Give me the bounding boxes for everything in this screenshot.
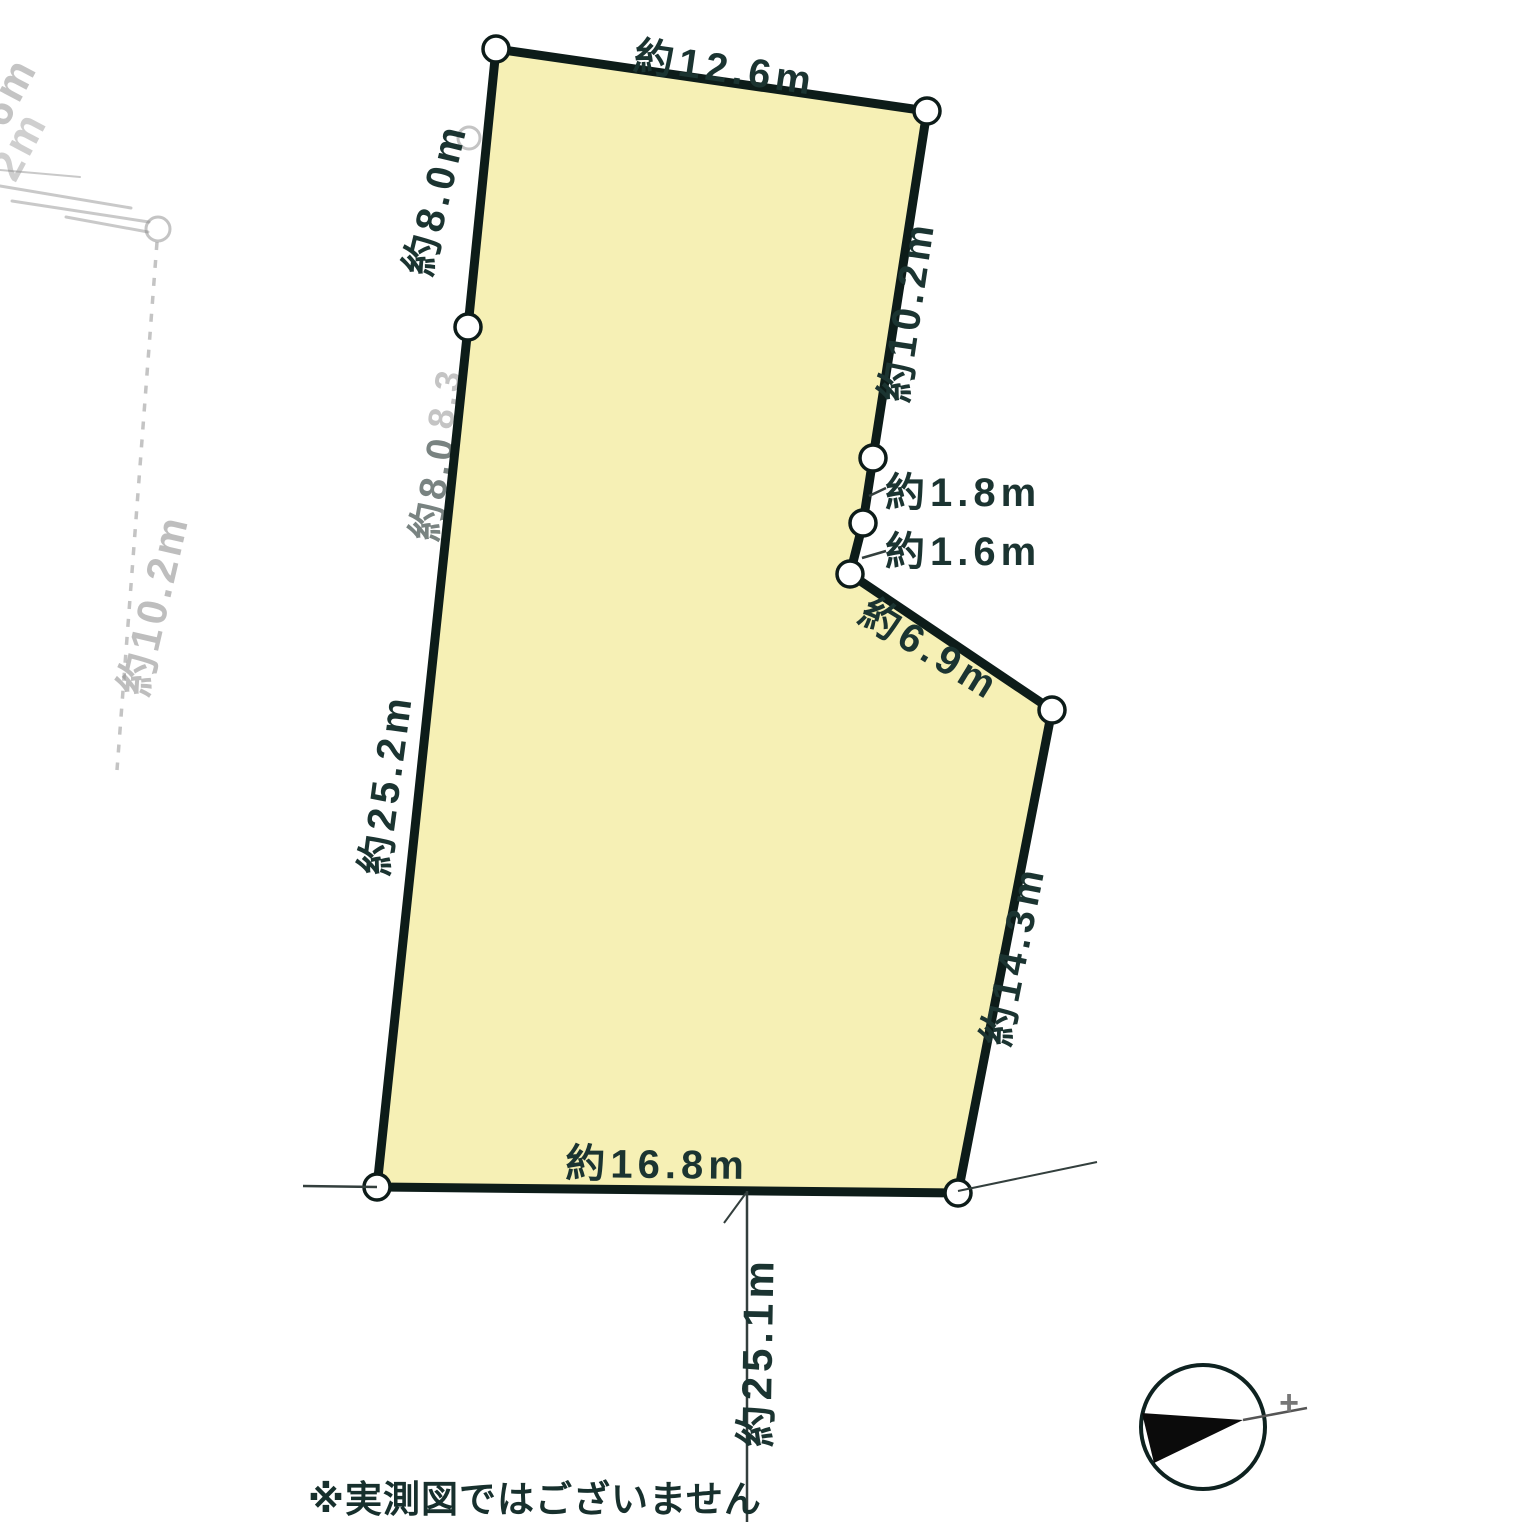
road-line-left (303, 1186, 377, 1187)
dim-step-2: 約1.6m (885, 530, 1041, 574)
measure-tick (724, 1193, 746, 1223)
ghost-text: 2m (0, 102, 58, 188)
dim-left-upper: 約8.0m (397, 118, 476, 280)
compass-north-icon: + (1141, 1365, 1307, 1489)
land-plot-diagram: 約12.6約12.6約10.2m6m2m8.3約8.0 約12.6m約10.2m… (0, 0, 1535, 1535)
compass-tip-mark: + (1279, 1384, 1299, 1422)
dim-step-1: 約1.8m (885, 471, 1041, 515)
plot-polygon (377, 49, 1052, 1193)
vertex-marker (850, 510, 876, 536)
road-line-right (958, 1162, 1097, 1191)
plot-layer (364, 36, 1065, 1206)
ghost-vertex-circle (146, 217, 170, 241)
disclaimer-note: ※実測図ではございません (308, 1478, 762, 1520)
vertex-marker (914, 98, 940, 124)
vertex-marker (455, 314, 481, 340)
vertex-marker (1039, 697, 1065, 723)
dim-bottom: 約16.8m (565, 1142, 749, 1188)
dim-road-width: 約25.1m (732, 1256, 782, 1448)
ghost-text: 約10.2m (110, 509, 197, 700)
vertex-marker (837, 561, 863, 587)
vertex-marker (860, 445, 886, 471)
leader-line-1-6m (862, 551, 886, 558)
vertex-marker (483, 36, 509, 62)
ghost-line (0, 186, 131, 208)
vertex-marker (945, 1180, 971, 1206)
